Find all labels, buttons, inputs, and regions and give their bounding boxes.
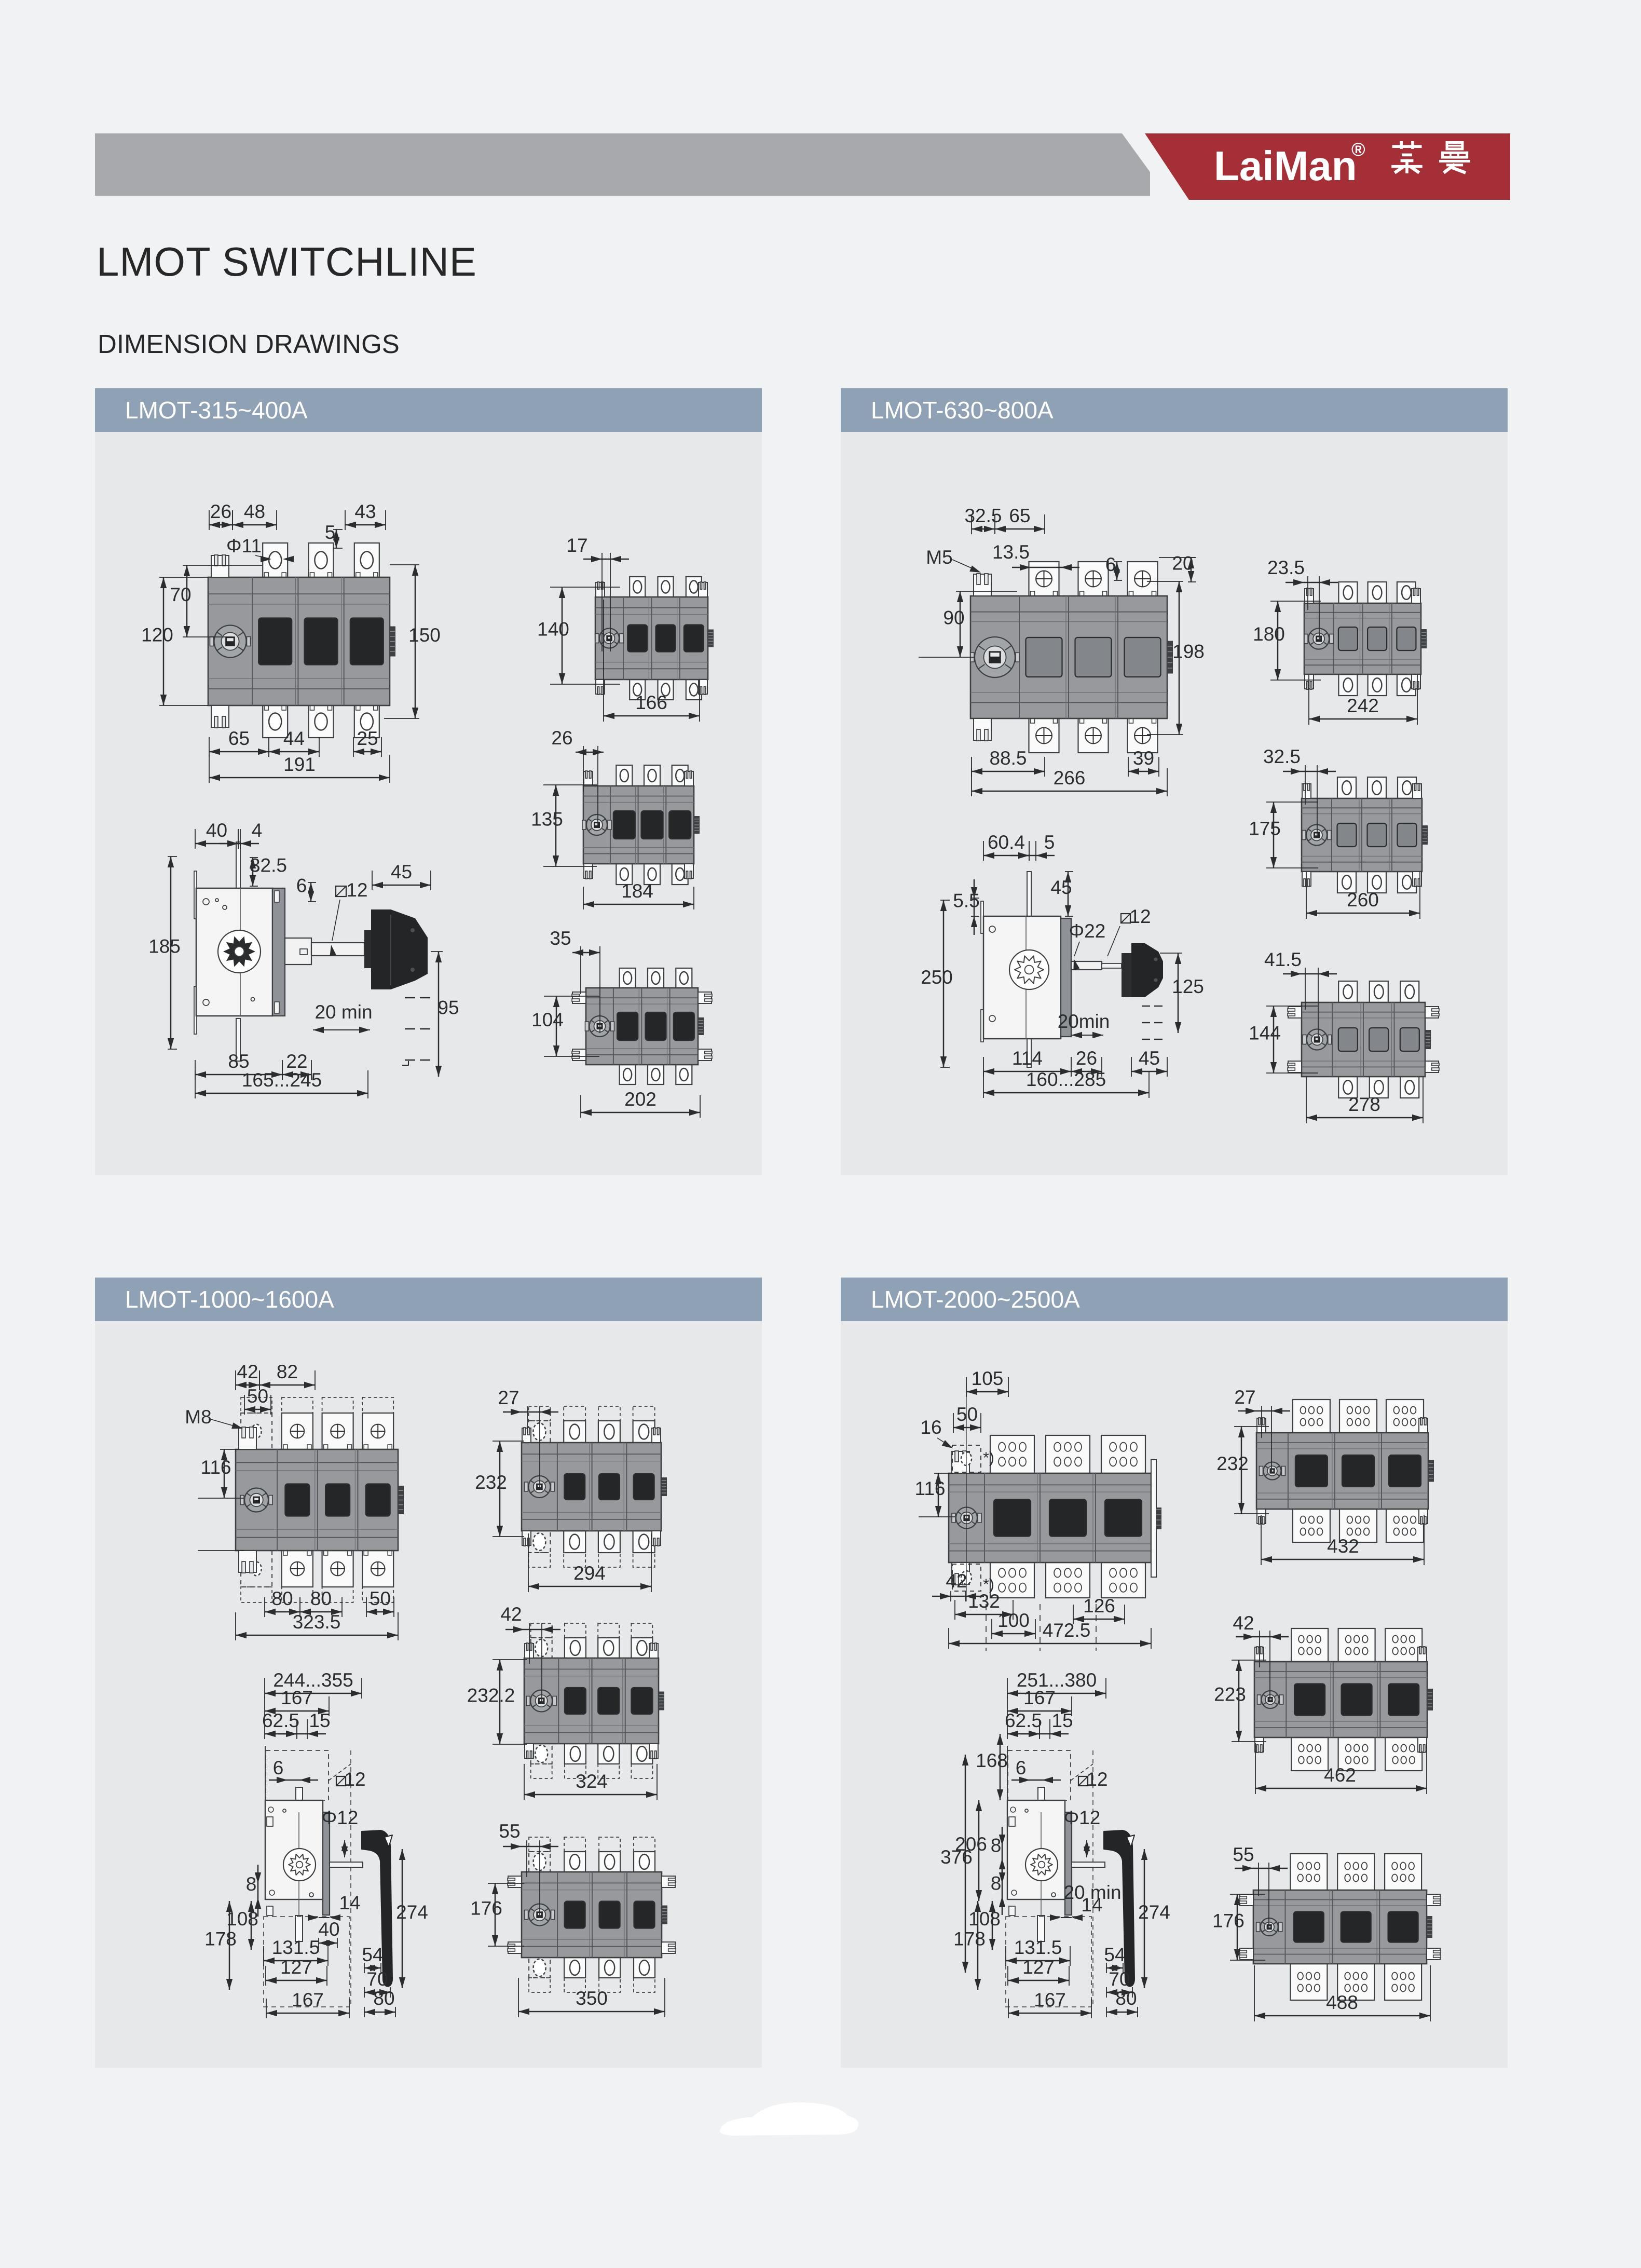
svg-text:232: 232	[1216, 1453, 1249, 1474]
svg-text:167: 167	[1034, 1989, 1066, 2011]
svg-text:*): *)	[983, 1449, 994, 1466]
svg-text:4: 4	[252, 820, 263, 841]
svg-text:274: 274	[396, 1902, 428, 1923]
svg-text:100: 100	[997, 1610, 1030, 1631]
svg-text:39: 39	[1133, 748, 1154, 769]
svg-text:6: 6	[273, 1757, 284, 1778]
svg-text:165...245: 165...245	[242, 1069, 322, 1091]
svg-text:127: 127	[1022, 1957, 1055, 1978]
svg-text:127: 127	[280, 1957, 312, 1978]
svg-text:54: 54	[1104, 1944, 1125, 1965]
svg-text:132: 132	[968, 1591, 1000, 1612]
svg-text:6: 6	[296, 875, 307, 897]
svg-text:Φ22: Φ22	[1069, 920, 1106, 942]
svg-text:12: 12	[1129, 906, 1151, 927]
svg-text:70: 70	[170, 584, 191, 605]
svg-text:45: 45	[1139, 1048, 1160, 1069]
svg-text:185: 185	[148, 936, 181, 957]
svg-text:27: 27	[498, 1387, 519, 1408]
svg-text:44: 44	[283, 728, 305, 749]
svg-text:5.5: 5.5	[953, 890, 979, 912]
svg-text:42: 42	[237, 1361, 258, 1382]
svg-text:80: 80	[1115, 1988, 1137, 2009]
svg-text:184: 184	[621, 880, 653, 902]
svg-text:294: 294	[573, 1563, 606, 1584]
svg-text:5: 5	[1044, 832, 1055, 853]
svg-text:223: 223	[1214, 1684, 1246, 1705]
svg-text:176: 176	[470, 1898, 502, 1919]
svg-text:62.5: 62.5	[262, 1710, 299, 1731]
svg-text:176: 176	[1212, 1910, 1245, 1932]
svg-text:20 min: 20 min	[314, 1001, 372, 1023]
svg-text:114: 114	[1012, 1048, 1043, 1069]
svg-text:55: 55	[1233, 1844, 1254, 1865]
svg-text:108: 108	[968, 1908, 1001, 1930]
svg-text:95: 95	[437, 997, 459, 1018]
svg-text:432: 432	[1327, 1536, 1359, 1557]
svg-text:Φ12: Φ12	[322, 1807, 359, 1828]
svg-text:41.5: 41.5	[1264, 949, 1302, 970]
svg-text:65: 65	[228, 728, 250, 749]
svg-text:20: 20	[1172, 553, 1193, 574]
svg-text:105: 105	[972, 1368, 1004, 1389]
svg-text:120: 120	[141, 624, 173, 646]
svg-text:167: 167	[281, 1687, 313, 1708]
svg-text:62.5: 62.5	[1005, 1710, 1042, 1731]
svg-text:22: 22	[286, 1051, 307, 1072]
svg-text:104: 104	[531, 1009, 564, 1030]
svg-text:462: 462	[1324, 1764, 1356, 1786]
svg-text:376: 376	[940, 1846, 973, 1868]
svg-text:32.5: 32.5	[964, 505, 1002, 526]
svg-text:54: 54	[362, 1944, 383, 1965]
svg-text:12: 12	[344, 1769, 365, 1790]
svg-text:32.5: 32.5	[1263, 746, 1301, 767]
svg-text:Φ12: Φ12	[1064, 1807, 1101, 1828]
svg-text:14: 14	[339, 1892, 360, 1913]
svg-text:140: 140	[537, 619, 569, 640]
svg-text:82: 82	[277, 1361, 298, 1382]
svg-text:70: 70	[366, 1968, 388, 1990]
svg-text:8: 8	[246, 1873, 257, 1895]
svg-text:15: 15	[309, 1710, 330, 1731]
svg-text:20min: 20min	[1058, 1011, 1110, 1032]
svg-text:45: 45	[1050, 877, 1072, 898]
svg-text:323.5: 323.5	[293, 1611, 341, 1633]
svg-text:144: 144	[1249, 1023, 1281, 1044]
svg-text:12: 12	[346, 879, 367, 901]
svg-text:40: 40	[206, 820, 227, 841]
svg-text:60.4: 60.4	[988, 832, 1025, 853]
svg-text:5: 5	[325, 522, 336, 543]
svg-text:266: 266	[1054, 767, 1086, 789]
svg-text:178: 178	[953, 1929, 986, 1950]
svg-text:45: 45	[391, 861, 412, 882]
svg-text:274: 274	[1138, 1902, 1170, 1923]
svg-text:50: 50	[247, 1386, 268, 1407]
svg-text:488: 488	[1326, 1992, 1358, 2013]
svg-text:42: 42	[1233, 1612, 1254, 1634]
svg-text:180: 180	[1253, 623, 1285, 645]
svg-text:48: 48	[244, 501, 265, 522]
svg-text:26: 26	[210, 501, 231, 522]
svg-text:232: 232	[475, 1472, 507, 1493]
svg-text:50: 50	[956, 1404, 978, 1425]
svg-text:350: 350	[576, 1988, 608, 2009]
svg-text:25: 25	[357, 728, 378, 749]
svg-text:26: 26	[551, 727, 572, 749]
svg-text:6: 6	[1105, 554, 1116, 575]
svg-text:116: 116	[915, 1478, 946, 1499]
svg-text:178: 178	[204, 1929, 237, 1950]
svg-text:16: 16	[920, 1417, 941, 1438]
svg-text:324: 324	[576, 1771, 608, 1792]
svg-text:35: 35	[550, 928, 571, 949]
svg-text:150: 150	[408, 624, 441, 646]
svg-text:126: 126	[1083, 1595, 1115, 1617]
svg-text:167: 167	[1023, 1687, 1056, 1708]
svg-text:191: 191	[283, 754, 316, 775]
svg-text:65: 65	[1009, 505, 1030, 526]
svg-text:27: 27	[1234, 1387, 1255, 1408]
svg-text:8: 8	[991, 1873, 1002, 1894]
svg-text:55: 55	[499, 1821, 520, 1842]
svg-text:70: 70	[1109, 1968, 1130, 1990]
svg-text:250: 250	[921, 967, 953, 988]
svg-text:23.5: 23.5	[1267, 557, 1305, 578]
svg-text:202: 202	[624, 1089, 657, 1110]
svg-text:Φ11: Φ11	[226, 535, 262, 556]
svg-text:17: 17	[566, 535, 587, 556]
svg-text:80: 80	[310, 1588, 332, 1609]
svg-text:166: 166	[635, 692, 667, 713]
svg-text:43: 43	[354, 501, 376, 522]
svg-text:160...285: 160...285	[1026, 1069, 1106, 1090]
svg-text:278: 278	[1348, 1094, 1380, 1115]
svg-text:32.5: 32.5	[250, 855, 287, 876]
svg-text:90: 90	[943, 607, 964, 629]
svg-text:42: 42	[500, 1604, 522, 1625]
svg-text:42: 42	[946, 1570, 967, 1592]
svg-text:260: 260	[1347, 889, 1379, 911]
svg-text:8: 8	[991, 1835, 1002, 1856]
svg-text:85: 85	[228, 1051, 249, 1072]
svg-text:168: 168	[976, 1750, 1008, 1771]
svg-text:50: 50	[370, 1588, 391, 1609]
svg-text:472.5: 472.5	[1043, 1620, 1091, 1641]
svg-text:13.5: 13.5	[992, 541, 1030, 563]
svg-text:131.5: 131.5	[1014, 1937, 1062, 1958]
svg-text:15: 15	[1051, 1710, 1073, 1731]
svg-text:80: 80	[271, 1588, 293, 1609]
svg-text:232.2: 232.2	[467, 1685, 515, 1706]
svg-text:14: 14	[1081, 1894, 1102, 1916]
svg-text:116: 116	[201, 1457, 231, 1478]
svg-text:125: 125	[1172, 976, 1204, 997]
svg-text:6: 6	[1016, 1757, 1027, 1778]
svg-text:26: 26	[1076, 1048, 1097, 1069]
svg-text:88.5: 88.5	[989, 748, 1027, 769]
svg-text:12: 12	[1086, 1769, 1107, 1790]
svg-text:40: 40	[318, 1919, 339, 1940]
svg-text:242: 242	[1347, 695, 1379, 716]
svg-text:131.5: 131.5	[272, 1937, 320, 1958]
svg-text:M8: M8	[185, 1406, 211, 1428]
svg-text:167: 167	[292, 1989, 324, 2011]
svg-text:80: 80	[373, 1988, 394, 2009]
svg-text:198: 198	[1172, 641, 1205, 662]
svg-text:175: 175	[1249, 818, 1281, 839]
svg-text:M5: M5	[926, 547, 952, 568]
svg-text:135: 135	[531, 809, 563, 830]
